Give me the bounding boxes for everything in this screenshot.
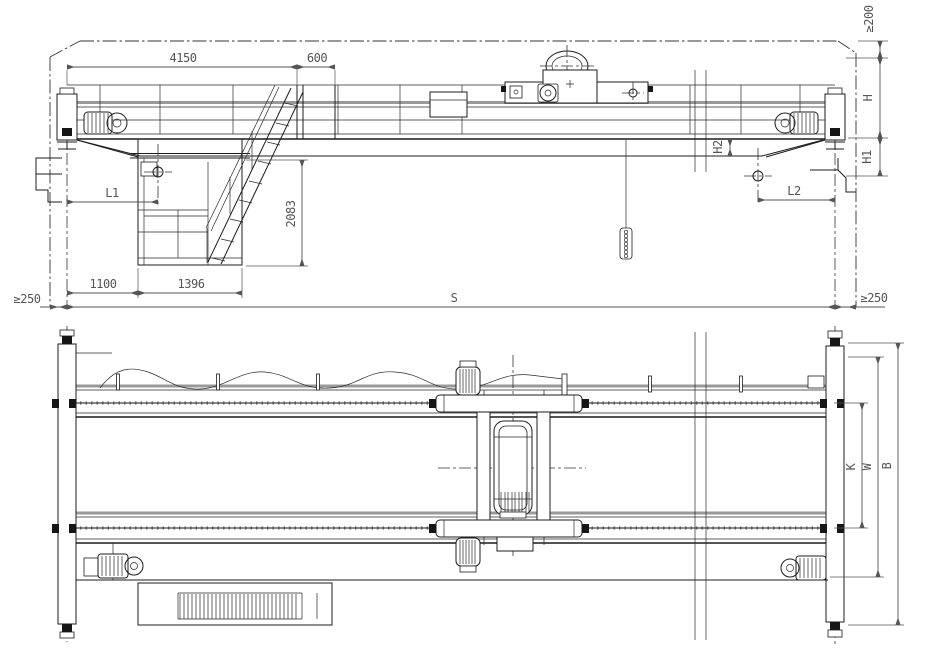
trolley-front [501,45,653,104]
travel-motor-right-plan [796,556,826,580]
dim-rail-gauge-k: K [844,462,858,470]
dim-left-clearance: ≥250 [14,292,41,306]
dim-wheel-base-b: B [880,462,894,469]
dim-hook-right: L2 [787,184,801,198]
dim-cab-offset: 1100 [90,277,117,291]
walkway-plan [76,543,828,580]
dim-cab-height: 2083 [284,200,298,227]
end-truck-right-front [766,88,856,307]
rail-corbel-left [36,158,62,202]
rail-corbel-right [810,158,856,192]
cab-stairs-plan [138,583,332,625]
pendant-control [620,140,632,259]
crane-general-arrangement: 4150 600 ≥200 H H1 H2 L1 L2 2083 [0,0,929,649]
dim-height-h: H [861,94,875,101]
dim-cab-width: 1396 [178,277,205,291]
front-elevation-view: 4150 600 ≥200 H H1 H2 L1 L2 2083 [14,5,888,307]
dim-right-clearance: ≥250 [861,291,888,305]
cross-travel-motor-bottom [456,538,480,566]
dim-span-top: 4150 [170,51,197,65]
dim-height-h1: H1 [860,150,874,164]
end-truck-right-plan [820,326,844,644]
end-truck-left-front [36,88,138,307]
plan-view: K W B [52,326,904,644]
dim-span-s: S [451,291,458,305]
column-lines-plan [695,332,706,640]
cross-travel-motor-top [456,367,480,395]
dim-top-clearance: ≥200 [862,5,876,32]
dim-stair-width: 600 [307,51,327,65]
dim-hook-left: L1 [105,186,119,200]
crane-drawing-sheet: 4150 600 ≥200 H H1 H2 L1 L2 2083 [0,0,929,649]
end-truck-left-plan [52,326,76,642]
dim-height-h2: H2 [711,140,725,154]
festoon-cable [76,353,824,398]
travel-motor-left-plan [98,554,128,578]
walkway-equipment-box [430,92,467,117]
